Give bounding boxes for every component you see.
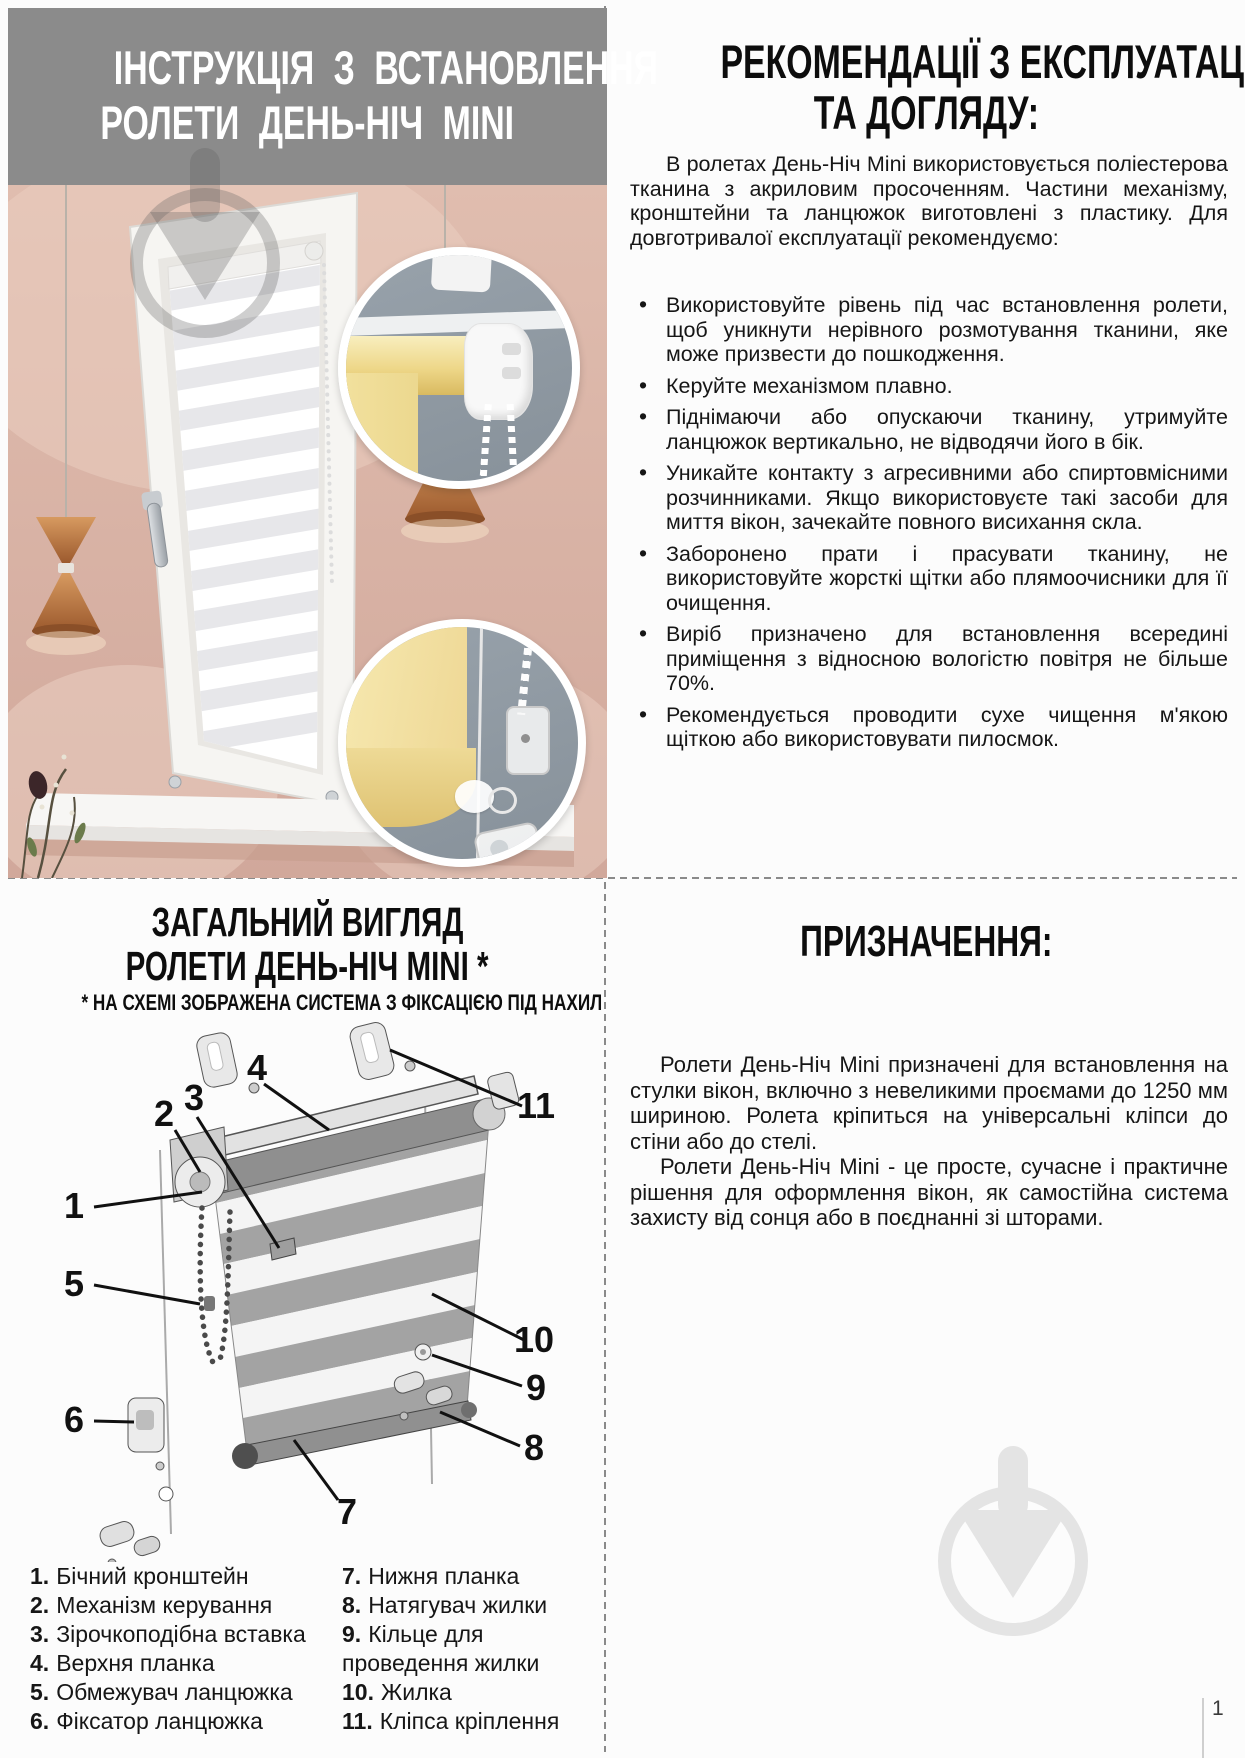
part-item: 1.Бічний кронштейн xyxy=(30,1562,332,1591)
recommendation-item: Уникайте контакту з агресивними або спир… xyxy=(630,461,1228,535)
callout-3: 3 xyxy=(184,1077,204,1118)
parts-list: 1.Бічний кронштейн 2.Механізм керування … xyxy=(30,1562,596,1736)
recommendations-title: РЕКОМЕНДАЦІЇ З ЕКСПЛУАТАЦІЇ ТА ДОГЛЯДУ: xyxy=(615,36,1237,138)
callout-1: 1 xyxy=(64,1185,84,1226)
brand-watermark-icon xyxy=(130,148,306,340)
screw-icon xyxy=(400,1412,408,1420)
part-number: 1. xyxy=(30,1563,49,1589)
part-item: 8.Натягувач жилки xyxy=(342,1591,596,1620)
page-number: 1 xyxy=(1212,1697,1224,1721)
parts-column-1: 1.Бічний кронштейн 2.Механізм керування … xyxy=(30,1562,332,1736)
recommendations-intro: В ролетах День-Ніч Mini використовується… xyxy=(630,152,1228,250)
installation-title-text2: РОЛЕТИ ДЕНЬ-НІЧ MINI xyxy=(101,95,515,150)
recommendations-list: Використовуйте рівень під час встановлен… xyxy=(630,293,1228,759)
part-item: 6.Фіксатор ланцюжка xyxy=(30,1707,332,1736)
callout-2: 2 xyxy=(154,1093,174,1134)
part-label: Нижня планка xyxy=(368,1563,519,1589)
part-label: Верхня планка xyxy=(56,1650,214,1676)
purpose-title: ПРИЗНАЧЕННЯ: xyxy=(615,918,1237,966)
overview-note-text: * НА СХЕМІ ЗОБРАЖЕНА СИСТЕМА З ФІКСАЦІЄЮ… xyxy=(81,990,602,1016)
recommendation-item: Використовуйте рівень під час встановлен… xyxy=(630,293,1228,367)
bottom-rail-cap xyxy=(232,1443,258,1469)
control-mechanism-detail xyxy=(464,323,534,420)
callout-9: 9 xyxy=(526,1367,546,1408)
purpose-paragraph: Ролети День-Ніч Mini призначені для вста… xyxy=(630,1052,1228,1154)
callout-7: 7 xyxy=(337,1491,357,1532)
callout-4: 4 xyxy=(247,1047,267,1088)
mounting-clip-right xyxy=(348,1022,396,1082)
recommendations-title-line2: ТА ДОГЛЯДУ: xyxy=(813,87,1038,138)
purpose-title-text: ПРИЗНАЧЕННЯ: xyxy=(800,918,1052,966)
screw-icon xyxy=(156,1462,164,1470)
part-number: 2. xyxy=(30,1592,49,1618)
part-number: 11. xyxy=(342,1708,373,1734)
chain-fixator-inset-photo xyxy=(338,619,586,867)
installation-header: ІНСТРУКЦІЯ З ВСТАНОВЛЕННЯ РОЛЕТИ ДЕНЬ-НІ… xyxy=(8,8,607,185)
part-number: 10. xyxy=(342,1679,374,1705)
fabric-roll-bottom xyxy=(338,748,476,827)
wire-tensioner-part xyxy=(132,1534,162,1557)
part-number: 3. xyxy=(30,1621,49,1647)
wire-washer xyxy=(159,1487,173,1501)
part-item: 5.Обмежувач ланцюжка xyxy=(30,1678,332,1707)
part-number: 7. xyxy=(342,1563,361,1589)
overview-title-line2: РОЛЕТИ ДЕНЬ-НІЧ MINI * xyxy=(8,944,607,988)
part-label: Кліпса кріплення xyxy=(380,1708,560,1734)
part-number: 9. xyxy=(342,1621,361,1647)
part-label: Механізм керування xyxy=(56,1592,272,1618)
part-item: 11.Кліпса кріплення xyxy=(342,1707,596,1736)
part-item: 3.Зірочкоподібна вставка xyxy=(30,1620,332,1649)
installation-title-text1: ІНСТРУКЦІЯ З ВСТАНОВЛЕННЯ xyxy=(114,40,658,95)
yellow-fabric xyxy=(338,373,418,489)
part-label: Натягувач жилки xyxy=(368,1592,547,1618)
wire-ring-detail xyxy=(488,787,517,814)
overview-note: * НА СХЕМІ ЗОБРАЖЕНА СИСТЕМА З ФІКСАЦІЄЮ… xyxy=(8,990,607,1016)
callout-5: 5 xyxy=(64,1263,84,1304)
installation-title-line1: ІНСТРУКЦІЯ З ВСТАНОВЛЕННЯ xyxy=(8,40,607,95)
chain-limiter xyxy=(204,1296,215,1311)
part-item: 9.Кільце для проведення жилки xyxy=(342,1620,596,1678)
wire-tensioner-part xyxy=(98,1519,137,1549)
part-number: 8. xyxy=(342,1592,361,1618)
part-label: Фіксатор ланцюжка xyxy=(56,1708,263,1734)
part-number: 4. xyxy=(30,1650,49,1676)
part-item: 2.Механізм керування xyxy=(30,1591,332,1620)
bracket-detail xyxy=(431,247,492,293)
rail-detail xyxy=(338,309,579,336)
bead-chain xyxy=(200,1208,214,1364)
recommendation-item: Рекомендується проводити сухе чищення м'… xyxy=(630,703,1228,752)
callout-11: 11 xyxy=(517,1085,555,1126)
installation-title-line2: РОЛЕТИ ДЕНЬ-НІЧ MINI xyxy=(8,95,607,150)
guide-wire-detail xyxy=(476,627,483,859)
recommendation-item: Заборонено прати і прасувати тканину, не… xyxy=(630,542,1228,616)
purpose-paragraph: Ролети День-Ніч Mini - це просте, сучасн… xyxy=(630,1154,1228,1231)
parts-column-2: 7.Нижня планка 8.Натягувач жилки 9.Кільц… xyxy=(342,1562,596,1736)
overview-title-text1: ЗАГАЛЬНИЙ ВИГЛЯД xyxy=(152,900,464,944)
recommendations-title-line1: РЕКОМЕНДАЦІЇ З ЕКСПЛУАТАЦІЇ xyxy=(720,36,1245,87)
screw-icon xyxy=(405,1061,415,1071)
chain-tensioner-detail xyxy=(506,706,549,775)
part-item: 4.Верхня планка xyxy=(30,1649,332,1678)
brand-watermark-icon xyxy=(938,1446,1114,1638)
recommendation-item: Піднімаючи або опускаючи тканину, утриму… xyxy=(630,405,1228,454)
part-item: 7.Нижня планка xyxy=(342,1562,596,1591)
part-number: 5. xyxy=(30,1679,49,1705)
recommendation-item: Керуйте механізмом плавно. xyxy=(630,374,1228,399)
part-number: 6. xyxy=(30,1708,49,1734)
part-label: Жилка xyxy=(381,1679,452,1705)
guide-wire-left xyxy=(160,1150,171,1534)
mechanism-inset-photo xyxy=(338,247,580,489)
overview-title-text2: РОЛЕТИ ДЕНЬ-НІЧ MINI * xyxy=(126,944,489,988)
purpose-text: Ролети День-Ніч Mini призначені для вста… xyxy=(630,1052,1228,1231)
roller-blind-diagram: 1 2 3 4 5 6 7 8 9 10 11 xyxy=(42,1022,557,1562)
instruction-page: ІНСТРУКЦІЯ З ВСТАНОВЛЕННЯ РОЛЕТИ ДЕНЬ-НІ… xyxy=(0,0,1245,1758)
part-label: Бічний кронштейн xyxy=(56,1563,248,1589)
recommendation-item: Виріб призначено для встановлення всеред… xyxy=(630,622,1228,696)
callout-8: 8 xyxy=(524,1427,544,1468)
window-photo xyxy=(8,185,607,878)
callout-6: 6 xyxy=(64,1399,84,1440)
part-label: Зірочкоподібна вставка xyxy=(56,1621,306,1647)
part-item: 10.Жилка xyxy=(342,1678,596,1707)
callout-10: 10 xyxy=(514,1319,554,1360)
bead-chain-detail xyxy=(517,622,535,715)
part-label: Обмежувач ланцюжка xyxy=(56,1679,293,1705)
overview-title-line1: ЗАГАЛЬНИЙ ВИГЛЯД xyxy=(8,900,607,944)
page-number-divider xyxy=(1202,1698,1204,1758)
part-label: Кільце для проведення жилки xyxy=(342,1621,539,1676)
